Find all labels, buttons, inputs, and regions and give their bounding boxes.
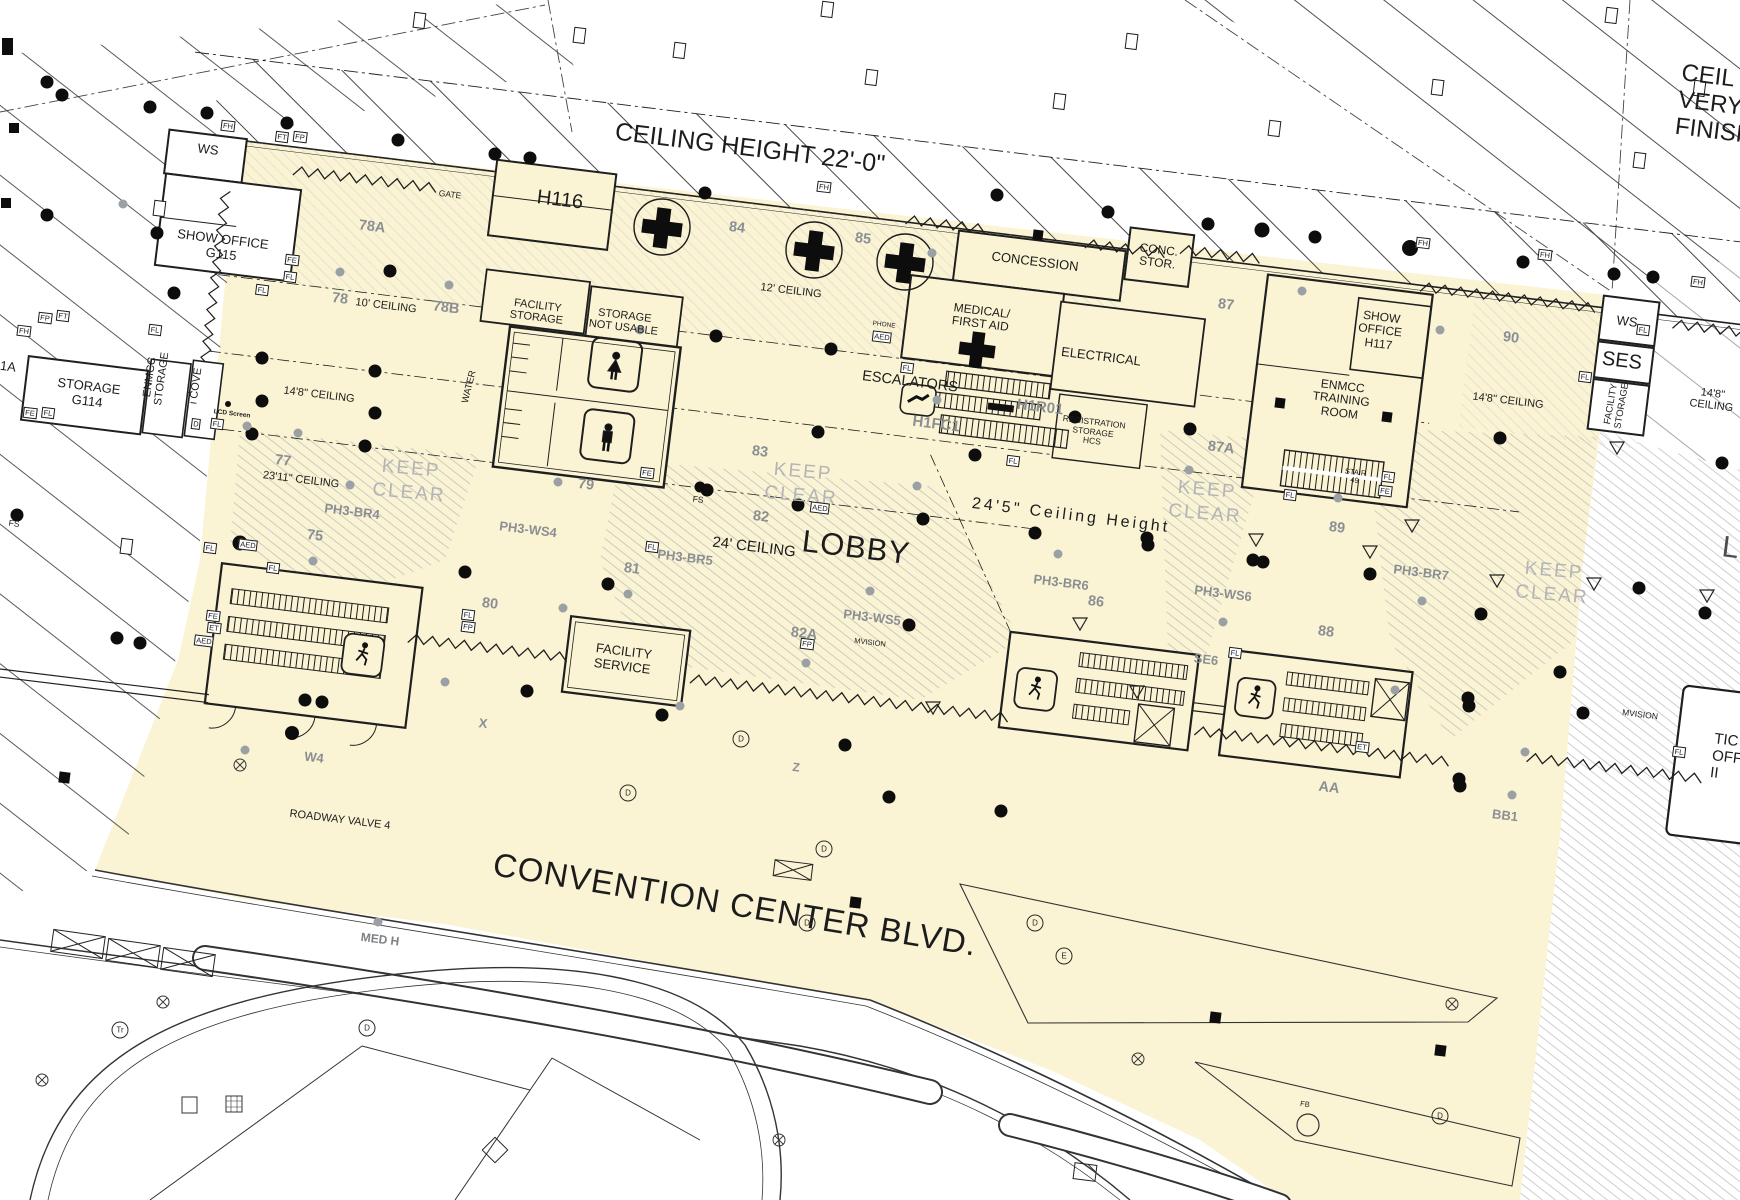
room-label-show-office-h117: SHOW OFFICE H117 (1356, 308, 1405, 353)
tag-fe: FE (285, 254, 300, 267)
tag-fh: FH (16, 325, 31, 338)
tag-aed: AED (810, 501, 831, 514)
room-label-conc-stor: CONC. STOR. (1137, 241, 1179, 272)
tag-fl: FL (266, 562, 280, 574)
tag-ft: FT (275, 131, 289, 144)
se6-label: SE6 (1193, 651, 1219, 668)
stair-49-label: STAIR 49 (1343, 467, 1366, 486)
room-label-ses: SES (1601, 347, 1643, 374)
tag-fp: FP (461, 621, 476, 634)
tag-fl: FL (1578, 371, 1592, 383)
area-label-86: 86 (1087, 593, 1105, 611)
tag-fl: FL (41, 407, 55, 419)
area-label-84: 84 (728, 219, 746, 237)
tag-et: ET (207, 622, 222, 635)
ceiling-note-cut: CEIL VERY FINISH (1673, 60, 1740, 150)
tag-ft: FT (56, 310, 70, 323)
fs-label-left: FS (8, 519, 20, 530)
plan-linework (0, 0, 1740, 1200)
road-marker-d: D (733, 731, 750, 748)
tag-fe: FE (640, 467, 655, 480)
tag-fe: FE (1378, 485, 1393, 498)
area-label-90: 90 (1502, 329, 1520, 347)
tag-fh: FH (816, 181, 831, 194)
tag-fh: FH (1415, 237, 1430, 250)
tag-fl: FL (1228, 647, 1242, 659)
road-marker-d: D (816, 841, 833, 858)
keep-clear-right1: KEEP CLEAR (1167, 475, 1244, 529)
tag-fl: FL (1636, 324, 1650, 336)
tag-fb: FB (1299, 1099, 1312, 1109)
room-label-ws-right: WS (1616, 314, 1639, 331)
keep-clear-right2: KEEP CLEAR (1514, 556, 1591, 610)
area-label-w4: W4 (303, 750, 324, 767)
ticket-office-label-cut: TIC OFF II (1709, 731, 1740, 785)
area-label-78a: 78A (358, 217, 386, 236)
area-label-75: 75 (306, 527, 324, 545)
area-label-88: 88 (1317, 623, 1335, 641)
road-marker-tr: Tr (112, 1022, 129, 1039)
tag-fl: FL (283, 271, 297, 283)
stairs-aa (1219, 650, 1413, 777)
room-restrooms (493, 327, 681, 488)
area-label-aa: AA (1318, 779, 1341, 798)
area-label-bb1: BB1 (1491, 807, 1519, 825)
tag-fl: FL (255, 284, 269, 296)
tag-aed: AED (194, 634, 215, 647)
tag-et: ET (1355, 741, 1370, 754)
tag-fl: FL (1672, 746, 1686, 758)
area-label-77: 77 (274, 452, 292, 470)
tag-d-box: D (191, 418, 202, 430)
area-label-87: 87 (1217, 296, 1235, 314)
tag-fl: FL (210, 418, 224, 430)
fs-label-mid: FS (692, 495, 704, 506)
road-marker-d: D (620, 785, 637, 802)
tag-fh: FH (1690, 276, 1705, 289)
floor-plan: WS SHOW OFFICE G115 GATE H116 78A 78 10'… (0, 0, 1740, 1200)
road-marker-d: D (1027, 915, 1044, 932)
tag-fl: FL (1006, 455, 1020, 467)
tag-aed: AED (238, 538, 259, 551)
area-label-81: 81 (623, 560, 641, 578)
tag-fe: FE (23, 407, 38, 420)
tag-fh: FH (220, 120, 235, 133)
ceiling-label-14-8-far-right: 14'8" CEILING (1689, 385, 1736, 415)
area-label-79: 79 (577, 476, 595, 494)
tag-fp: FP (800, 638, 815, 651)
tag-fl: FL (203, 542, 217, 554)
area-label-89: 89 (1328, 519, 1346, 537)
keep-clear-left: KEEP CLEAR (371, 454, 448, 508)
road-marker-d: D (359, 1020, 376, 1037)
tag-fe: FE (206, 610, 221, 623)
tag-aed: AED (872, 330, 893, 343)
room-label-ws-left: WS (197, 142, 220, 159)
area-label-82: 82 (752, 508, 770, 526)
road-marker-d: D (1432, 1108, 1449, 1125)
tag-fl: FL (900, 362, 914, 374)
tag-fl: FL (1283, 489, 1297, 501)
area-label-78: 78 (331, 290, 349, 308)
area-label-87a: 87A (1207, 438, 1235, 457)
area-label-78b: 78B (432, 298, 460, 317)
road-marker-e: E (1056, 948, 1073, 965)
tag-fl: FL (148, 324, 162, 336)
road-marker-d: D (799, 915, 816, 932)
marker-x-label: X (478, 716, 488, 731)
tag-fp: FP (38, 312, 53, 325)
area-label-80: 80 (481, 595, 499, 613)
room-label-enmcc-training: ENMCC TRAINING ROOM (1310, 376, 1372, 423)
tag-fl: FL (1381, 471, 1395, 483)
tag-fl: FL (461, 609, 475, 621)
tag-fh: FH (1537, 249, 1552, 262)
room-show-office-g115 (155, 174, 301, 282)
tag-fl: FL (645, 541, 659, 553)
area-label-1a-cut: 1A (0, 359, 17, 375)
tag-fp: FP (293, 131, 308, 144)
area-label-83: 83 (751, 443, 769, 461)
plaza-curves (30, 968, 781, 1200)
adjacent-lobby-label-cut: L (1720, 530, 1740, 565)
area-label-85: 85 (854, 230, 872, 248)
